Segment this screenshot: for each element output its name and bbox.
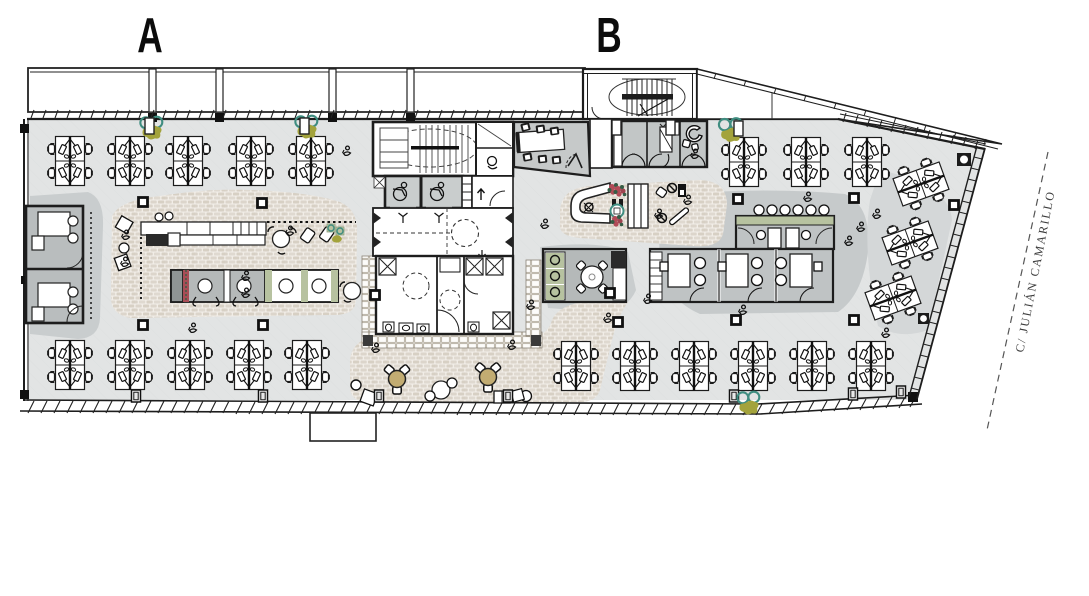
- svg-text:A: A: [137, 8, 162, 63]
- svg-text:B: B: [596, 8, 621, 63]
